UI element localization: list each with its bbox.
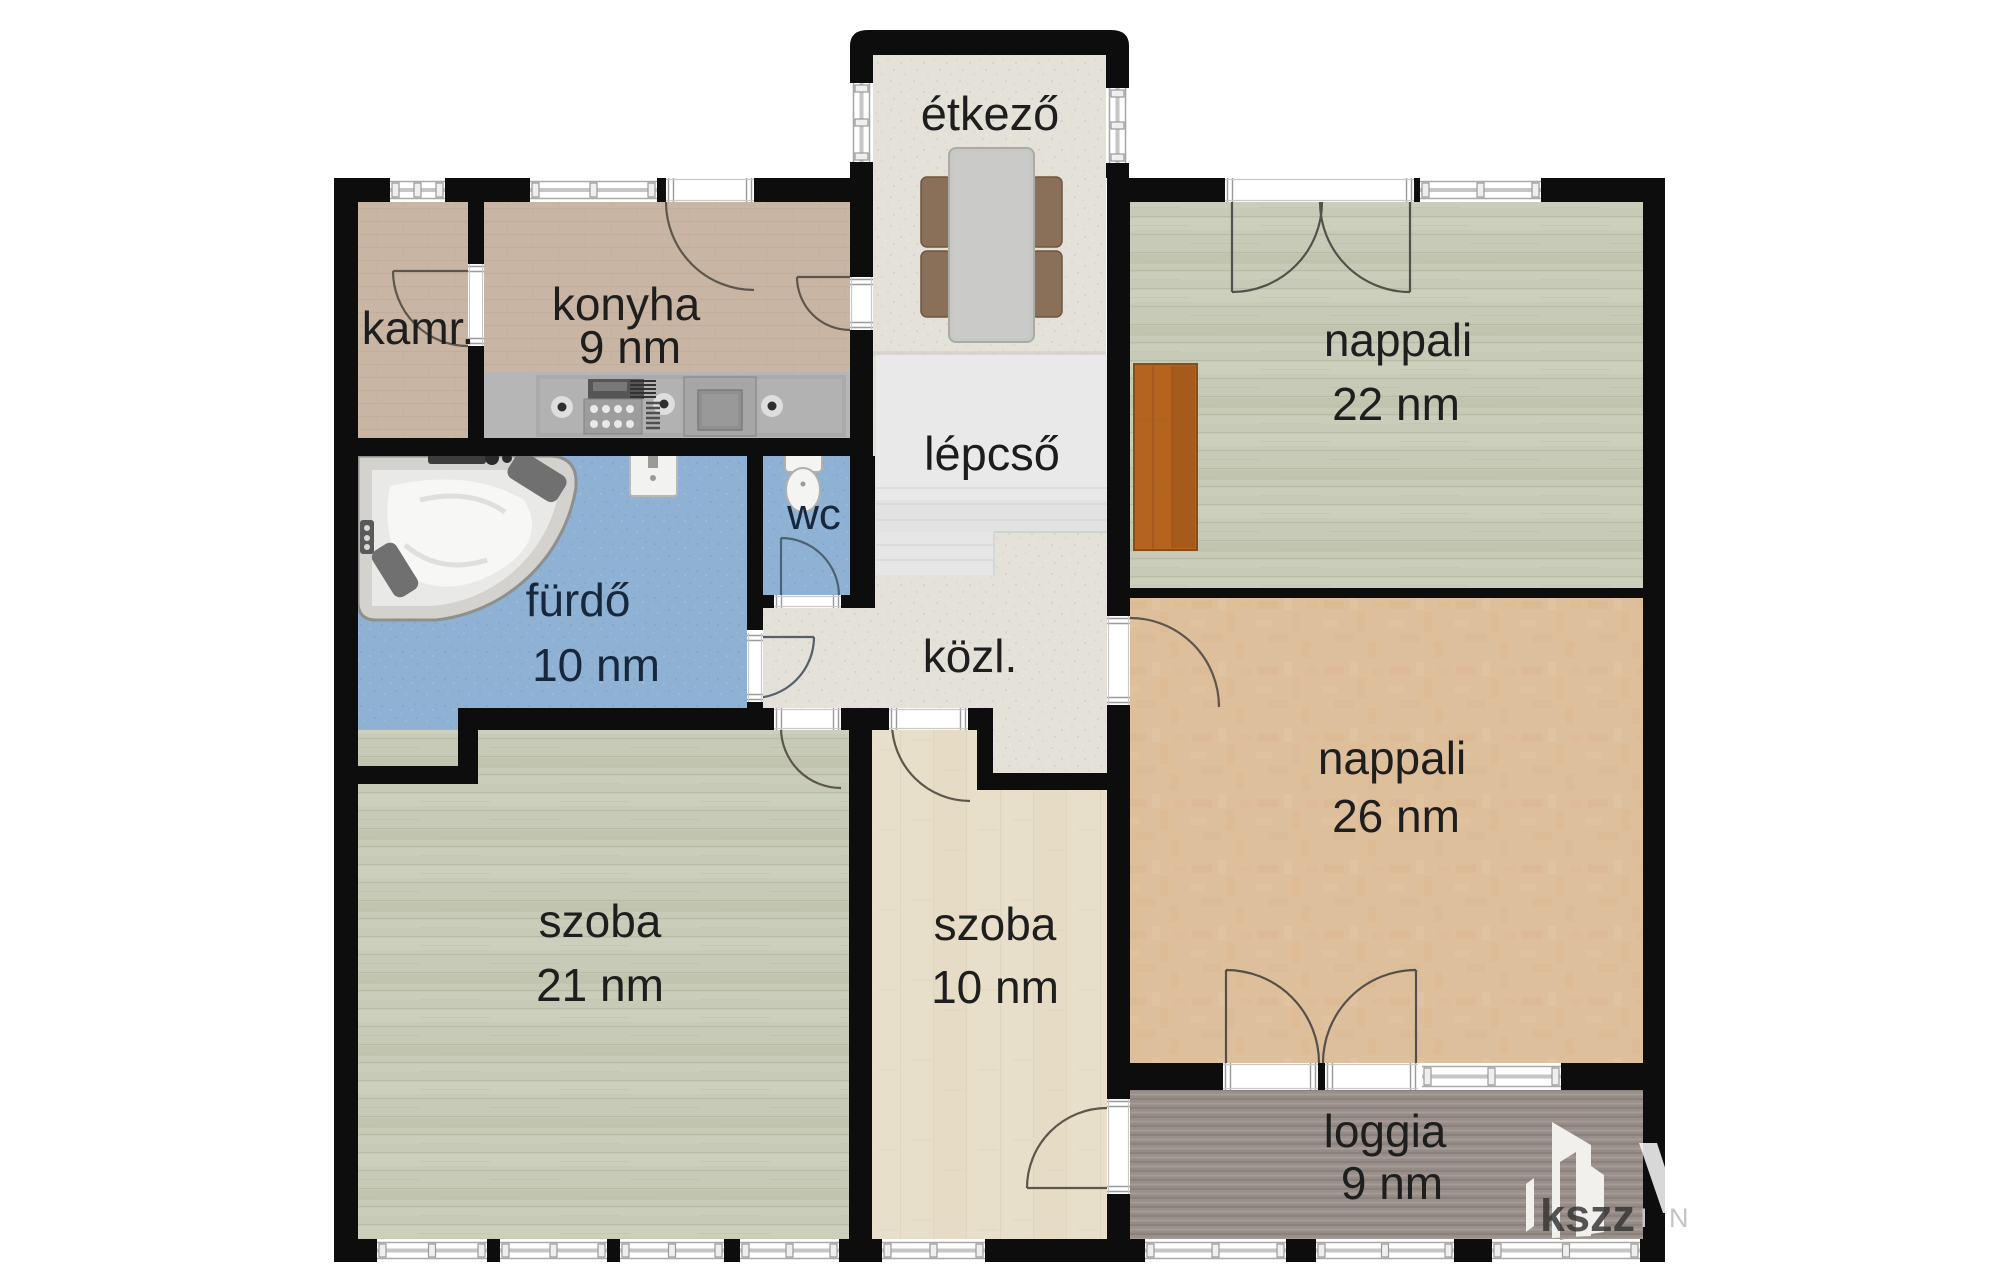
svg-text:21 nm: 21 nm — [536, 959, 664, 1011]
svg-text:kamr.: kamr. — [362, 302, 474, 354]
svg-text:étkező: étkező — [921, 87, 1059, 140]
svg-text:nappali: nappali — [1318, 732, 1466, 784]
svg-text:26 nm: 26 nm — [1332, 790, 1460, 842]
svg-text:22 nm: 22 nm — [1332, 378, 1460, 430]
svg-text:közl.: közl. — [923, 630, 1018, 682]
svg-text:10 nm: 10 nm — [931, 961, 1059, 1013]
svg-text:szoba: szoba — [934, 898, 1057, 950]
svg-text:kszz: kszz — [1540, 1190, 1635, 1241]
svg-text:wc: wc — [786, 490, 841, 539]
svg-text:loggia: loggia — [1324, 1105, 1447, 1157]
svg-text:fürdő: fürdő — [526, 574, 631, 626]
svg-text:nappali: nappali — [1324, 314, 1472, 366]
svg-text:9 nm: 9 nm — [1341, 1157, 1443, 1209]
svg-text:9 nm: 9 nm — [579, 321, 681, 373]
svg-text:10 nm: 10 nm — [532, 639, 660, 691]
svg-text:I N: I N — [1640, 1203, 1696, 1233]
svg-text:lépcső: lépcső — [924, 427, 1060, 480]
svg-text:szoba: szoba — [539, 895, 662, 947]
